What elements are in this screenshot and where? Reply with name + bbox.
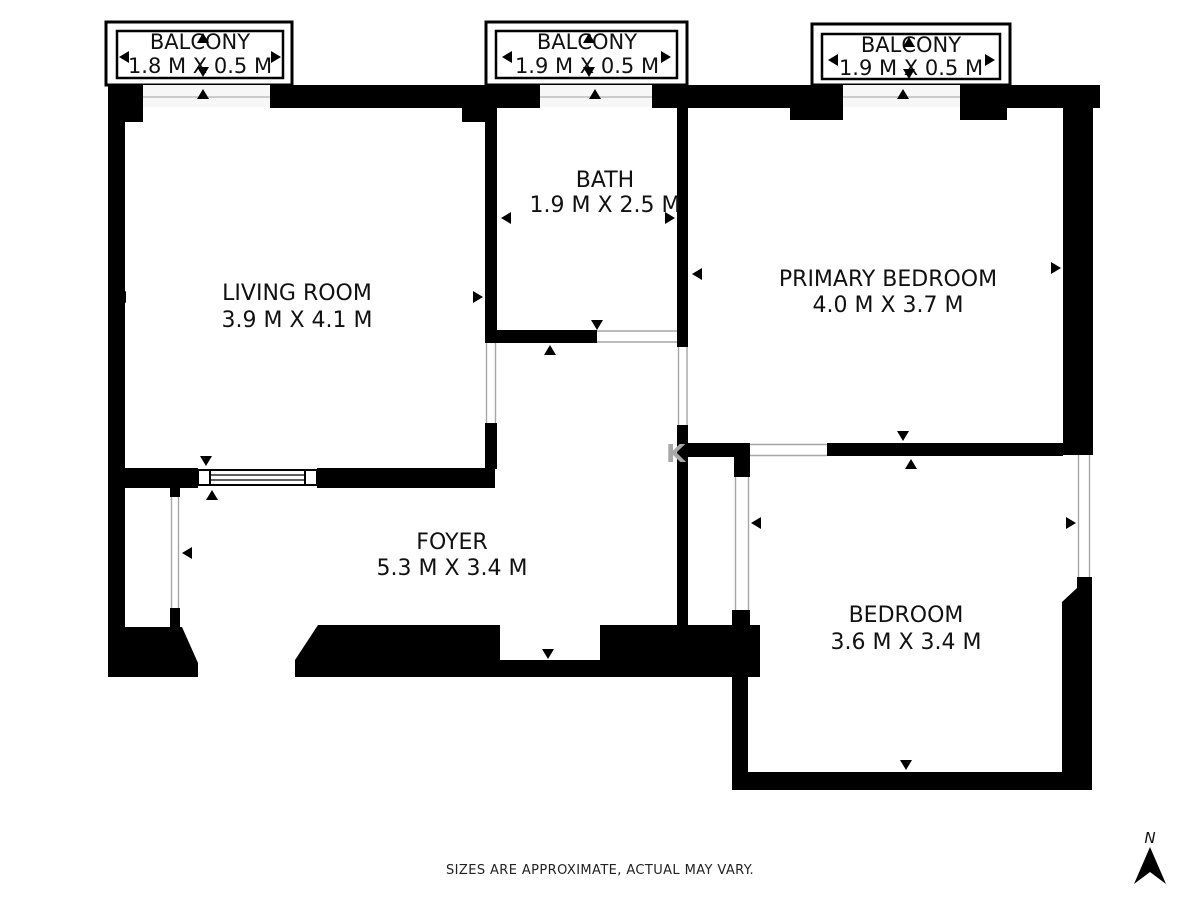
wall-pier xyxy=(790,108,843,120)
window-frame xyxy=(198,470,317,485)
wall-segment xyxy=(170,485,180,497)
disclaimer-text: SIZES ARE APPROXIMATE, ACTUAL MAY VARY. xyxy=(446,863,754,878)
wall-segment xyxy=(495,330,597,343)
room-dims-bath: 1.9 M X 2.5 M xyxy=(530,193,681,218)
arrow-left-icon xyxy=(501,212,511,224)
wall-segment xyxy=(732,610,750,627)
wall-segment xyxy=(485,423,497,469)
window-symbol xyxy=(198,470,317,485)
room-dims-living-room: 3.9 M X 4.1 M xyxy=(222,308,373,333)
room-label-foyer: FOYER xyxy=(416,530,487,555)
compass: N xyxy=(1134,829,1166,884)
wall-segment xyxy=(652,85,843,108)
room-label-bedroom: BEDROOM xyxy=(849,603,964,628)
arrow-down-icon xyxy=(542,649,554,659)
arrow-down-icon xyxy=(200,456,212,466)
wall-segment xyxy=(677,108,688,347)
arrow-left-icon xyxy=(751,517,761,529)
wall-pier xyxy=(960,108,1007,120)
dimension-arrows xyxy=(116,33,1076,770)
north-label: N xyxy=(1144,829,1155,847)
balcony-3-dims: 1.9 M X 0.5 M xyxy=(839,56,983,80)
wall-entry-jamb xyxy=(295,625,500,660)
wall-segment xyxy=(485,108,497,343)
room-dims-foyer: 5.3 M X 3.4 M xyxy=(377,556,528,581)
floor-plan-page: BALCONY 1.8 M X 0.5 M BALCONY 1.9 M X 0.… xyxy=(0,0,1200,900)
arrow-up-icon xyxy=(206,490,218,500)
wall-segment xyxy=(270,85,540,108)
wall-segment xyxy=(108,85,125,677)
balcony-2-dims: 1.9 M X 0.5 M xyxy=(515,54,659,78)
balcony-1-dims: 1.8 M X 0.5 M xyxy=(128,54,272,78)
wall-segment xyxy=(688,443,750,457)
arrow-down-icon xyxy=(900,760,912,770)
floor-plan-canvas: BALCONY 1.8 M X 0.5 M BALCONY 1.9 M X 0.… xyxy=(0,0,1200,900)
wall-segment xyxy=(170,608,180,627)
room-labels: LIVING ROOM 3.9 M X 4.1 M BATH 1.9 M X 2… xyxy=(222,168,998,655)
wall-pier xyxy=(125,108,143,122)
wall-segment xyxy=(108,468,198,488)
wall-segment xyxy=(1063,85,1093,455)
wall-segment xyxy=(600,625,760,660)
arrow-left-icon xyxy=(182,547,192,559)
wall-entry-jamb xyxy=(108,627,198,677)
room-label-living-room: LIVING ROOM xyxy=(222,281,372,306)
arrow-up-icon xyxy=(544,345,556,355)
north-arrow-icon xyxy=(1134,847,1166,884)
wall-segment xyxy=(1062,577,1092,790)
arrow-right-icon xyxy=(1051,262,1061,274)
arrow-right-icon xyxy=(473,291,483,303)
arrow-down-icon xyxy=(897,431,909,441)
arrow-up-icon xyxy=(905,459,917,469)
room-label-bath: BATH xyxy=(576,168,634,193)
balcony-2: BALCONY 1.9 M X 0.5 M xyxy=(486,22,687,85)
wall-segment xyxy=(827,443,1063,456)
wall-segment xyxy=(734,457,750,477)
watermark-letter: K xyxy=(666,439,687,468)
room-label-primary-bedroom: PRIMARY BEDROOM xyxy=(779,267,997,292)
arrow-left-icon xyxy=(692,268,702,280)
arrow-right-icon xyxy=(1066,517,1076,529)
wall-segment xyxy=(317,468,495,488)
balcony-3: BALCONY 1.9 M X 0.5 M xyxy=(812,24,1010,85)
wall-segment xyxy=(295,660,760,677)
wall-pier xyxy=(462,108,487,122)
arrow-down-icon xyxy=(591,320,603,330)
balcony-1: BALCONY 1.8 M X 0.5 M xyxy=(106,22,292,85)
room-dims-primary-bedroom: 4.0 M X 3.7 M xyxy=(813,293,964,318)
room-dims-bedroom: 3.6 M X 3.4 M xyxy=(831,630,982,655)
wall-segment xyxy=(732,772,1092,790)
